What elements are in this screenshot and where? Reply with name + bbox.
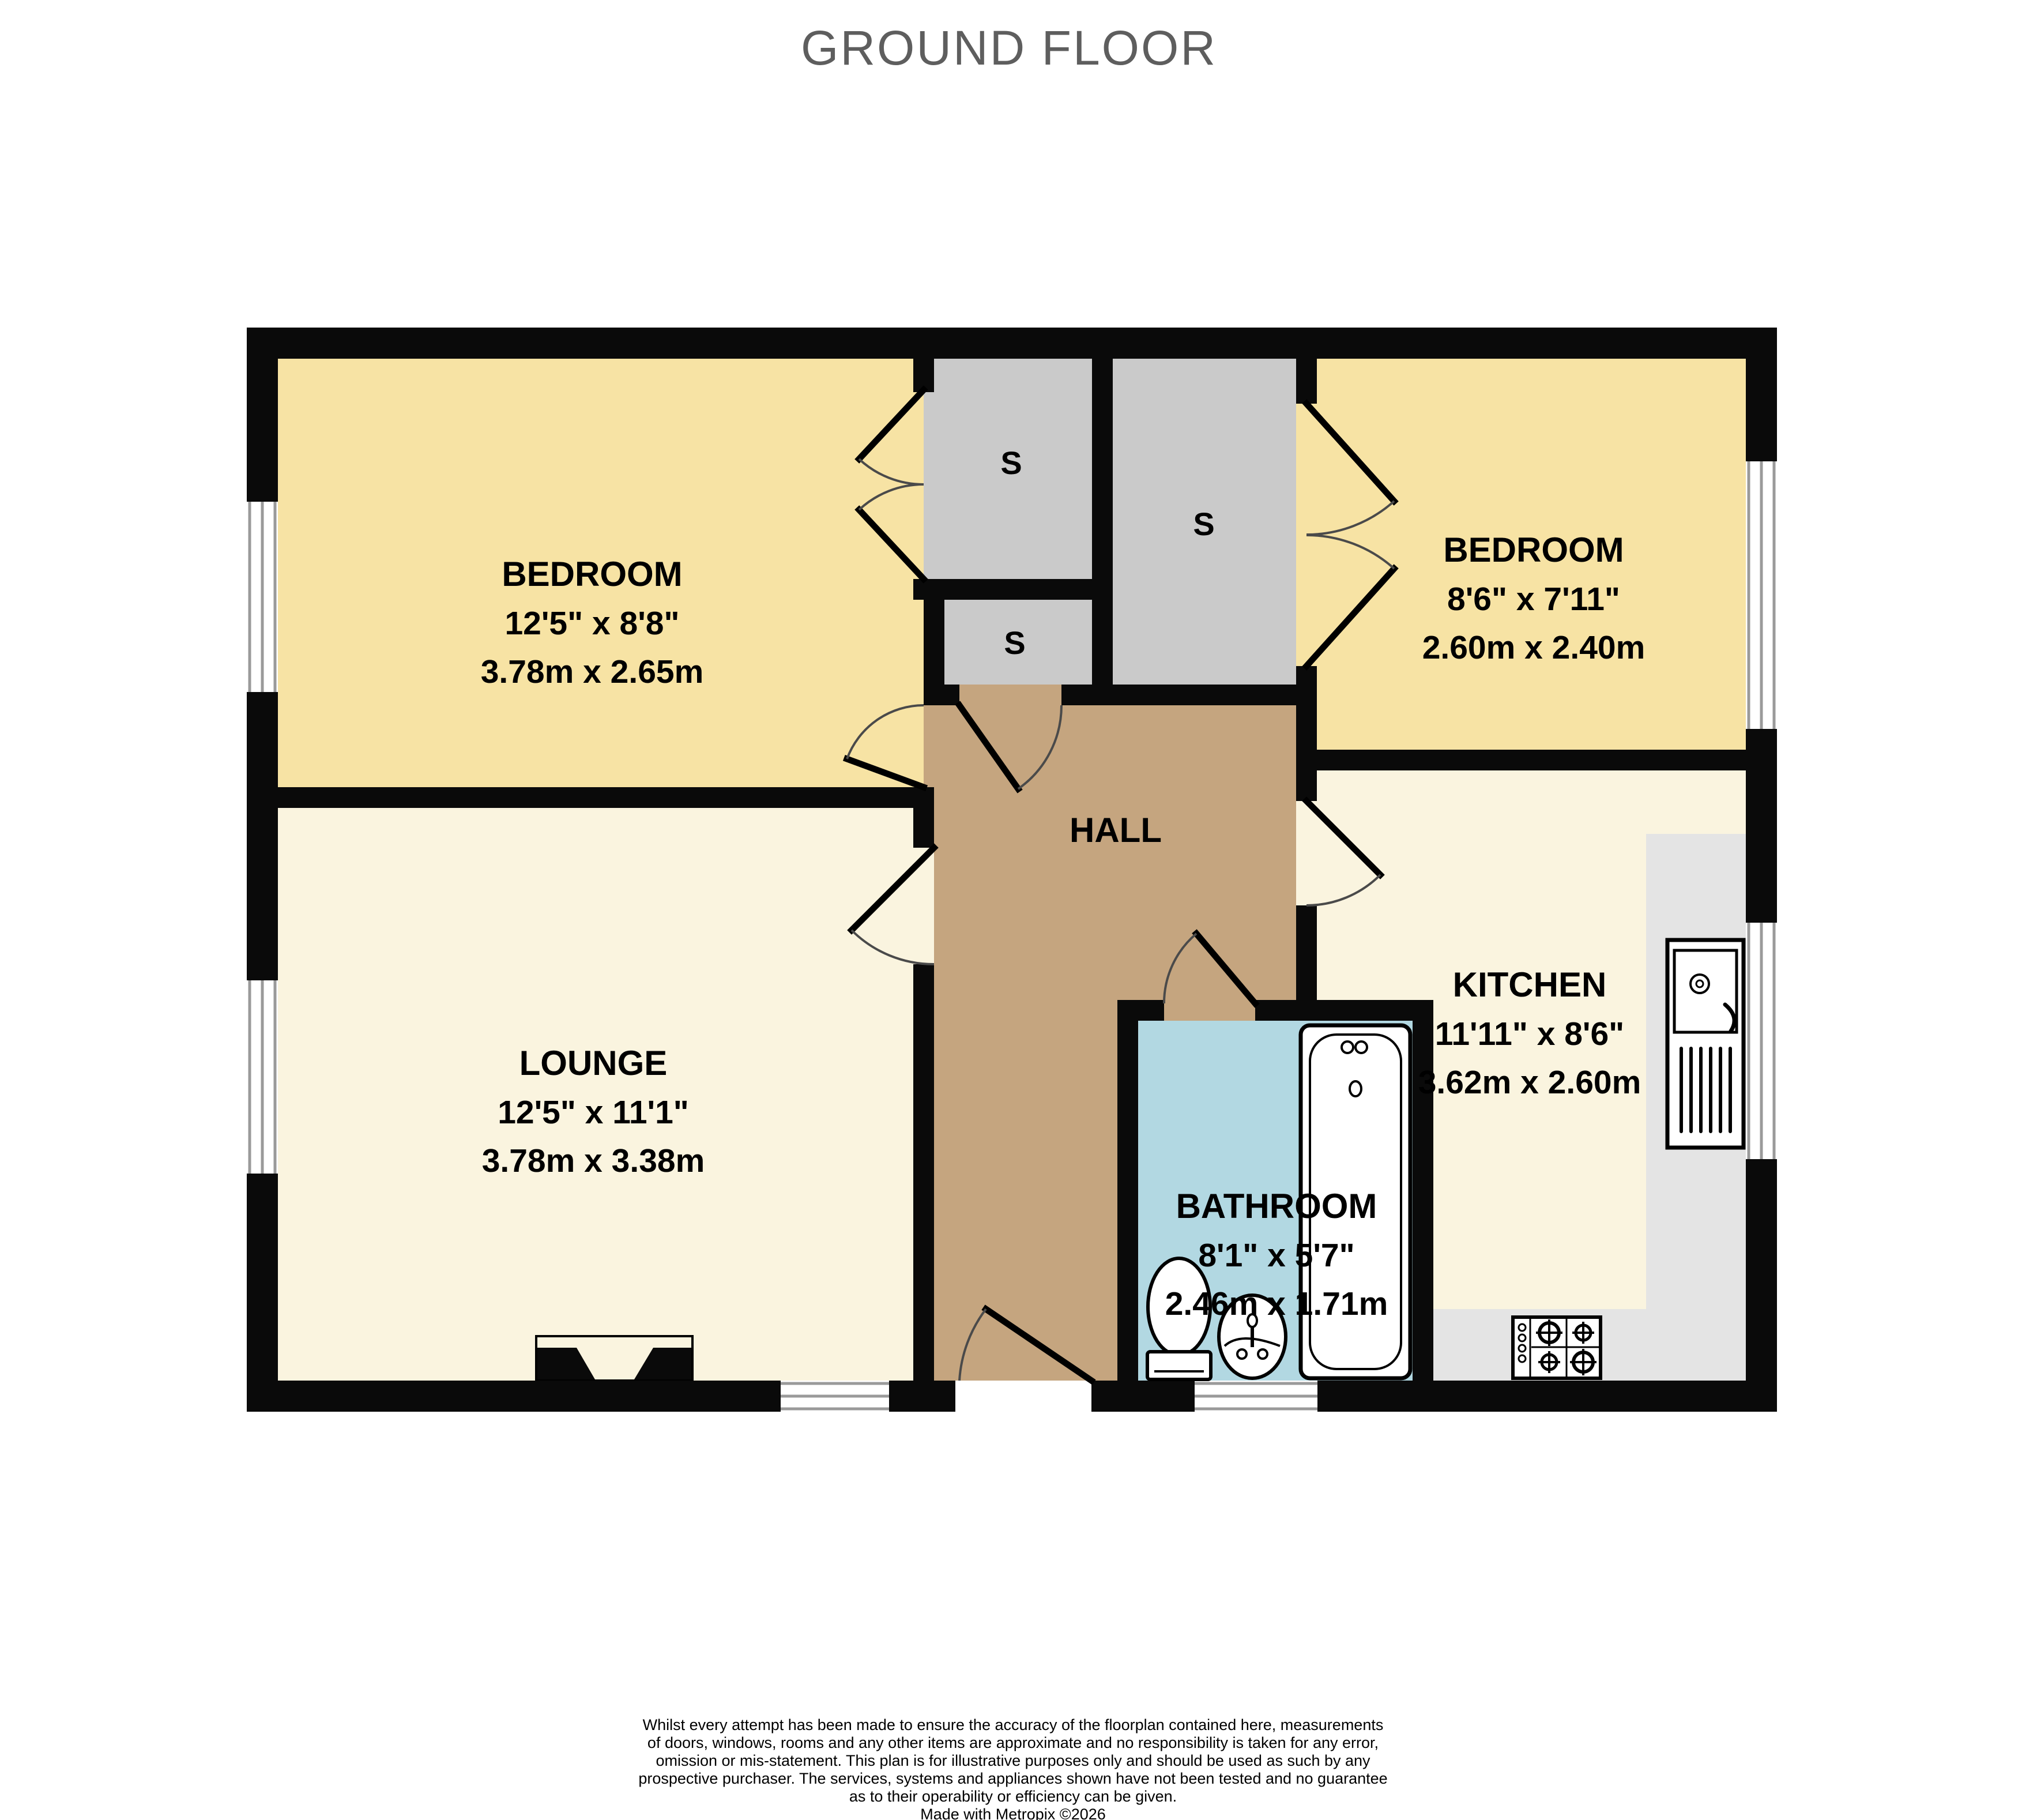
page-title: GROUND FLOOR: [801, 21, 1217, 75]
storage-2-label: S: [1193, 506, 1214, 542]
label-bedroom-1: BEDROOM 12'5" x 8'8" 3.78m x 2.65m: [481, 555, 704, 690]
wall-exterior-left: [247, 328, 278, 1412]
storage-3-label: S: [1004, 625, 1025, 661]
hob-icon: [1513, 1317, 1601, 1378]
disclaimer-line: of doors, windows, rooms and any other i…: [647, 1734, 1379, 1751]
bedroom-1-name: BEDROOM: [502, 555, 682, 593]
floorplan-page: GROUND FLOOR BEDROOM 12'5" x 8'8" 3.78m …: [0, 0, 2022, 1820]
window-lounge-left: [247, 980, 278, 1174]
window-kitchen: [1746, 923, 1777, 1159]
bedroom-1-imperial: 12'5" x 8'8": [504, 605, 679, 642]
window-lounge-bottom: [781, 1381, 889, 1412]
label-bathroom: BATHROOM 8'1" x 5'7" 2.46m x 1.71m: [1165, 1187, 1388, 1322]
kitchen-imperial: 11'11" x 8'6": [1435, 1016, 1624, 1052]
disclaimer-line: omission or mis-statement. This plan is …: [656, 1752, 1370, 1769]
hall-name: HALL: [1070, 811, 1162, 849]
disclaimer-line: Whilst every attempt has been made to en…: [643, 1716, 1384, 1733]
disclaimer-line: as to their operability or efficiency ca…: [849, 1788, 1177, 1805]
lounge-imperial: 12'5" x 11'1": [498, 1094, 689, 1131]
kitchen-sink-icon: [1667, 940, 1744, 1148]
bathroom-metric: 2.46m x 1.71m: [1165, 1285, 1388, 1322]
bedroom-2-imperial: 8'6" x 7'11": [1447, 581, 1620, 618]
lounge-metric: 3.78m x 3.38m: [482, 1142, 705, 1179]
label-bedroom-2: BEDROOM 8'6" x 7'11" 2.60m x 2.40m: [1422, 531, 1646, 666]
window-bathroom: [1195, 1381, 1317, 1412]
disclaimer: Whilst every attempt has been made to en…: [638, 1716, 1387, 1820]
room-floors: [278, 359, 1746, 1381]
wall-exterior-top: [247, 328, 1777, 359]
fireplace-icon: [536, 1336, 692, 1381]
floor-plan-svg: GROUND FLOOR BEDROOM 12'5" x 8'8" 3.78m …: [0, 0, 2022, 1820]
bedroom-2-name: BEDROOM: [1443, 531, 1624, 569]
kitchen-metric: 3.62m x 2.60m: [1418, 1064, 1641, 1101]
window-bedroom-1: [247, 502, 278, 692]
made-with-credit: Made with Metropix ©2026: [920, 1806, 1106, 1820]
lounge-name: LOUNGE: [519, 1044, 668, 1082]
front-door-opening: [955, 1381, 1091, 1412]
bedroom-1-metric: 3.78m x 2.65m: [481, 653, 704, 690]
window-bedroom-2: [1746, 461, 1777, 729]
storage-1-label: S: [1000, 445, 1022, 481]
disclaimer-line: prospective purchaser. The services, sys…: [638, 1770, 1387, 1787]
kitchen-name: KITCHEN: [1453, 965, 1607, 1004]
bathroom-name: BATHROOM: [1176, 1187, 1377, 1225]
bathroom-imperial: 8'1" x 5'7": [1198, 1237, 1354, 1274]
bedroom-2-metric: 2.60m x 2.40m: [1422, 629, 1646, 666]
